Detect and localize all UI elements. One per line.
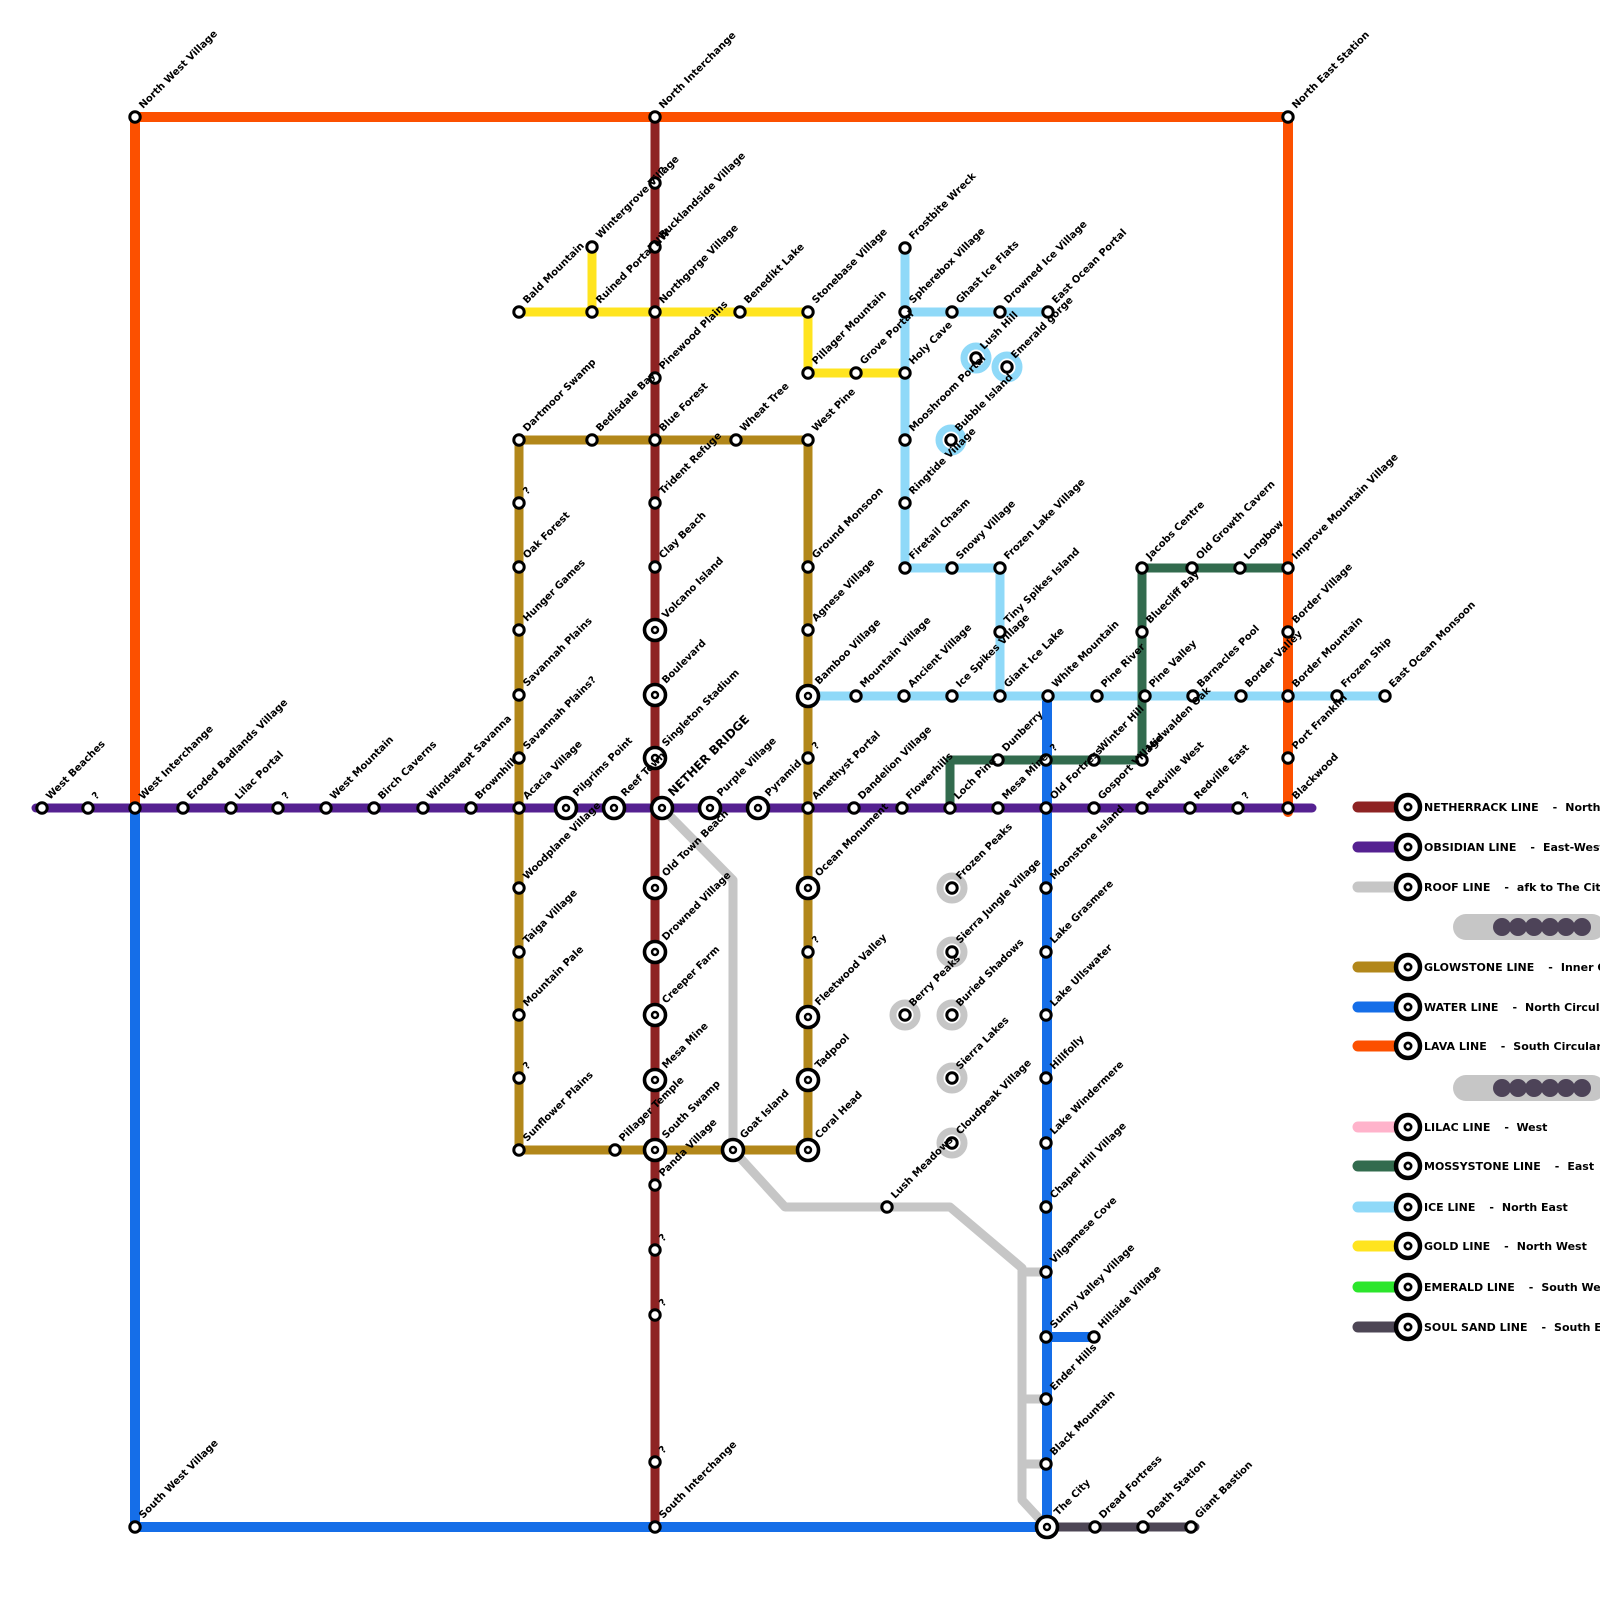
station-dot — [1089, 1332, 1099, 1342]
station-dot — [849, 803, 859, 813]
station-dread-fortress[interactable] — [1090, 1522, 1100, 1532]
station--[interactable] — [273, 803, 283, 813]
station-giant-ice-lake[interactable] — [995, 691, 1005, 701]
station-label: Blue Forest — [657, 381, 710, 434]
station-death-station[interactable] — [1138, 1522, 1148, 1532]
station-interchange-core — [756, 806, 759, 809]
station-label: Vilgamese Cove — [1048, 1195, 1119, 1266]
station-dot — [1137, 627, 1147, 637]
legend-row-obsidian-line: OBSIDIAN LINE-East-West — [1358, 835, 1600, 859]
station-dot — [803, 307, 813, 317]
legend-separator: - — [1501, 1040, 1506, 1053]
station-dot — [130, 1522, 140, 1532]
station-north-west-village[interactable] — [130, 112, 140, 122]
legend-station-icon-dot — [1406, 1325, 1410, 1329]
station-label: Cloudpeak Village — [954, 1058, 1034, 1138]
station-interchange-core — [708, 806, 711, 809]
station-label: Drowned Village — [660, 870, 733, 943]
station-west-pine[interactable] — [803, 435, 813, 445]
station-label: ? — [90, 790, 102, 802]
legend-line-desc: South West — [1541, 1281, 1600, 1294]
station-blue-forest[interactable] — [650, 435, 660, 445]
station-label: Boulevard — [660, 638, 708, 686]
station-dot — [1089, 803, 1099, 813]
legend-station-icon-dot — [1406, 1044, 1410, 1048]
station-dartmoor-swamp[interactable] — [514, 435, 524, 445]
station-lake-ullswater[interactable] — [1041, 1010, 1051, 1020]
station-label: Holy Cave — [907, 320, 955, 368]
station-label: Lake Ullswater — [1048, 942, 1115, 1009]
station-dot — [1041, 1138, 1051, 1148]
station-south-swamp[interactable] — [645, 1140, 666, 1161]
station-snowy-village[interactable] — [947, 563, 957, 573]
station-dot — [900, 498, 910, 508]
station-south-interchange[interactable] — [650, 1522, 660, 1532]
station-dot — [947, 883, 957, 893]
station-ocean-monument[interactable] — [798, 878, 819, 899]
station-interchange-core — [1045, 1525, 1048, 1528]
station-dot — [514, 307, 524, 317]
station-pyramid[interactable] — [748, 798, 769, 819]
station-label: Mooshroom Portal — [907, 353, 988, 434]
station-sunny-valley-village[interactable] — [1041, 1332, 1051, 1342]
station-dot — [803, 753, 813, 763]
station-dot — [1236, 691, 1246, 701]
station-interchange-core — [564, 806, 567, 809]
station-west-mountain[interactable] — [321, 803, 331, 813]
legend-label: ROOF LINE-afk to The City — [1424, 881, 1600, 894]
legend-label: GLOWSTONE LINE-Inner Orbit — [1424, 961, 1600, 974]
legend-dot — [1573, 918, 1591, 936]
station-label: Tiny Spikes Island — [1002, 546, 1082, 626]
station-dot — [83, 803, 93, 813]
station-label: Bald Mountain — [521, 241, 586, 306]
station-label: Fleetwood Valley — [813, 932, 889, 1008]
legend-row-lava-line: LAVA LINE-South Circular — [1358, 1034, 1600, 1058]
station-pine-valley[interactable] — [1140, 691, 1150, 701]
legend-line-desc: East — [1567, 1160, 1594, 1173]
station-dot — [947, 1073, 957, 1083]
legend-station-icon-dot — [1406, 845, 1410, 849]
station-benedikt-lake[interactable] — [735, 307, 745, 317]
station-interchange-core — [653, 693, 656, 696]
station-tadpool[interactable] — [798, 1070, 819, 1091]
station-label: Ender Hills — [1048, 1342, 1099, 1393]
station--[interactable] — [514, 498, 524, 508]
station-label: Improve Mountain Village — [1290, 452, 1400, 562]
legend-separator: - — [1530, 841, 1535, 854]
station-ruined-portal-nw[interactable] — [587, 307, 597, 317]
station-longbow[interactable] — [1235, 563, 1245, 573]
legend-label: ICE LINE-North East — [1424, 1201, 1568, 1214]
legend-line-name: LILAC LINE — [1424, 1121, 1490, 1134]
station-acacia-village[interactable] — [514, 803, 524, 813]
legend-line-name: MOSSYSTONE LINE — [1424, 1160, 1541, 1173]
station-dot — [995, 691, 1005, 701]
station-redville-east[interactable] — [1185, 803, 1195, 813]
station-blackwood[interactable] — [1283, 803, 1293, 813]
station-frozen-lake-village[interactable] — [995, 563, 1005, 573]
station-sunflower-plains[interactable] — [514, 1145, 524, 1155]
station-dot — [1090, 1522, 1100, 1532]
legend-label: LILAC LINE-West — [1424, 1121, 1547, 1134]
station-label: Emerald gorge — [1009, 295, 1075, 361]
station--[interactable] — [650, 1457, 660, 1467]
station-label: Pyramid — [763, 758, 804, 799]
station-dot — [418, 803, 428, 813]
station-hunger-games[interactable] — [514, 625, 524, 635]
station-dot — [900, 435, 910, 445]
station-ender-hills[interactable] — [1041, 1394, 1051, 1404]
station-dot — [945, 803, 955, 813]
station-dot — [650, 1245, 660, 1255]
legend-line-desc: Inner Orbit — [1561, 961, 1600, 974]
station-interchange-core — [653, 886, 656, 889]
legend-label: OBSIDIAN LINE-East-West — [1424, 841, 1600, 854]
station-dot — [1092, 691, 1102, 701]
station-bald-mountain[interactable] — [514, 307, 524, 317]
legend-separator: - — [1548, 961, 1553, 974]
station-label: Moonstone Island — [1048, 804, 1126, 882]
legend-line-desc: South East — [1554, 1321, 1600, 1334]
station-label: Lush Meadows — [889, 1135, 955, 1201]
station-pilgrims-point[interactable] — [556, 798, 577, 819]
station-dot — [899, 691, 909, 701]
station-label: Benedikt Lake — [742, 242, 807, 307]
station-dot — [803, 562, 813, 572]
legend-dot — [1509, 918, 1527, 936]
station-dot — [1235, 563, 1245, 573]
station-wheat-tree[interactable] — [731, 435, 741, 445]
station-label: ? — [280, 790, 292, 802]
legend-line-name: OBSIDIAN LINE — [1424, 841, 1516, 854]
station-old-fortress[interactable] — [1041, 803, 1051, 813]
station-mooshroom-portal[interactable] — [900, 435, 910, 445]
station-drowned-village[interactable] — [645, 942, 666, 963]
legend-separator: - — [1504, 1121, 1508, 1134]
station-dot — [1186, 1522, 1196, 1532]
station-dot — [947, 307, 957, 317]
station-dot — [1380, 691, 1390, 701]
station-stonebase-village[interactable] — [803, 307, 813, 317]
station-northgorge-village[interactable] — [650, 307, 660, 317]
station-woodplane-village[interactable] — [514, 883, 524, 893]
station-dot — [1041, 1459, 1051, 1469]
station-dot — [1041, 1267, 1051, 1277]
station-label: Black Mountain — [1048, 1389, 1117, 1458]
station-boulevard[interactable] — [645, 685, 666, 706]
station-the-city[interactable] — [1037, 1517, 1058, 1538]
station--[interactable] — [803, 753, 813, 763]
station-dot — [1140, 691, 1150, 701]
station-ancient-village[interactable] — [899, 691, 909, 701]
station-vilgamese-cove[interactable] — [1041, 1267, 1051, 1277]
station-pillager-mountain[interactable] — [803, 368, 813, 378]
legend-station-icon-dot — [1406, 1205, 1410, 1209]
legend-line-desc: afk to The City — [1517, 881, 1600, 894]
station-dot — [650, 435, 660, 445]
station-dot — [273, 803, 283, 813]
legend-row-ice-line: ICE LINE-North East — [1358, 1195, 1568, 1219]
legend-line-name: ICE LINE — [1424, 1201, 1475, 1214]
station-label: ? — [1240, 790, 1252, 802]
legend-line-name: NETHERRACK LINE — [1424, 801, 1539, 814]
station-moonstone-island[interactable] — [1041, 883, 1051, 893]
station-label: Longbow — [1242, 518, 1286, 562]
station-label: Sunflower Plains — [521, 1070, 595, 1144]
station-nether-bridge[interactable] — [652, 798, 673, 819]
station-lilac-portal[interactable] — [226, 803, 236, 813]
station-chapel-hill-village[interactable] — [1041, 1202, 1051, 1212]
legend-line-desc: South Circular — [1513, 1040, 1600, 1053]
station-interchange-core — [612, 806, 615, 809]
station-giant-bastion[interactable] — [1186, 1522, 1196, 1532]
station-grove-portal[interactable] — [851, 368, 861, 378]
station-dot — [650, 1310, 660, 1320]
station-dot — [587, 435, 597, 445]
station-label: Old Growth Cavern — [1194, 479, 1277, 562]
station-west-interchange[interactable] — [130, 803, 140, 813]
station-bamboo-village[interactable] — [798, 686, 819, 707]
station-label: Bedisdale Bay — [594, 370, 658, 434]
station-ice-spikes-village[interactable] — [947, 691, 957, 701]
station--[interactable] — [1233, 803, 1243, 813]
station-label: Dartmoor Swamp — [521, 357, 598, 434]
station-dot — [1283, 112, 1293, 122]
legend-separator: - — [1529, 1281, 1534, 1294]
station-interchange-core — [806, 1148, 809, 1151]
station-label: Taiga Village — [521, 888, 580, 947]
station-drowned-ice-village[interactable] — [995, 307, 1005, 317]
station-goat-island[interactable] — [723, 1140, 744, 1161]
station-reef-town[interactable] — [604, 798, 625, 819]
station-bedisdale-bay[interactable] — [587, 435, 597, 445]
station-dot — [650, 112, 660, 122]
legend-row-water-line: WATER LINE-North Circular — [1358, 995, 1600, 1019]
station-loch-pine[interactable] — [945, 803, 955, 813]
station-hillside-village[interactable] — [1089, 1332, 1099, 1342]
station-creeper-farm[interactable] — [645, 1005, 666, 1026]
station-old-town-beach[interactable] — [645, 878, 666, 899]
station-coral-head[interactable] — [798, 1140, 819, 1161]
station-ghast-ice-flats[interactable] — [947, 307, 957, 317]
station-lake-windermere[interactable] — [1041, 1138, 1051, 1148]
station-gosport-village[interactable] — [1089, 803, 1099, 813]
station-hillfolly[interactable] — [1041, 1073, 1051, 1083]
station-label: Windswept Savanna — [425, 713, 514, 802]
station-interchange-core — [660, 806, 663, 809]
station-label: Lake Windermere — [1048, 1059, 1126, 1137]
station-label: Mesa Mine — [660, 1021, 710, 1071]
legend-row-soul-sand-line: SOUL SAND LINE-South East — [1358, 1315, 1600, 1339]
station-north-east-station[interactable] — [1283, 112, 1293, 122]
station-frostbite-wreck[interactable] — [900, 243, 910, 253]
legend-separator: - — [1555, 1160, 1560, 1173]
station-interchange-core — [806, 1015, 809, 1018]
station-dandelion-village[interactable] — [849, 803, 859, 813]
station-clay-beach[interactable] — [650, 562, 660, 572]
station-taiga-village[interactable] — [514, 947, 524, 957]
station-lake-grasmere[interactable] — [1041, 947, 1051, 957]
station-amethyst-portal[interactable] — [803, 803, 813, 813]
station-dot — [1137, 803, 1147, 813]
legend-dot — [1525, 1079, 1543, 1097]
station-border-mountain[interactable] — [1283, 691, 1293, 701]
station--[interactable] — [650, 1310, 660, 1320]
station-dot — [466, 803, 476, 813]
station-label: Bluecliff Bay — [1144, 569, 1202, 627]
station-savannah-plains[interactable] — [514, 690, 524, 700]
station-dot — [1283, 563, 1293, 573]
station-white-mountain[interactable] — [1043, 691, 1053, 701]
station-fleetwood-valley[interactable] — [798, 1007, 819, 1028]
station-label: Dunberry — [1000, 709, 1045, 754]
station-dot — [900, 243, 910, 253]
station-label: Frozen Ship — [1339, 636, 1394, 691]
station-dot — [514, 1145, 524, 1155]
station-dot — [1041, 1332, 1051, 1342]
station-dot — [178, 803, 188, 813]
legend-line-desc: North East — [1502, 1201, 1568, 1214]
station-volcano-island[interactable] — [645, 620, 666, 641]
station-label: Frozen Peaks — [954, 822, 1015, 883]
station-windswept-savanna[interactable] — [418, 803, 428, 813]
legend-dot — [1493, 1079, 1511, 1097]
station-dot — [900, 1010, 910, 1020]
station-black-mountain[interactable] — [1041, 1459, 1051, 1469]
station-dot — [947, 691, 957, 701]
station-label: Frostbite Wreck — [907, 171, 978, 242]
station-dot — [37, 803, 47, 813]
station-lush-meadows[interactable] — [882, 1202, 892, 1212]
station-label: Oak Forest — [521, 510, 572, 561]
station-oak-forest[interactable] — [514, 562, 524, 572]
station-mesa-mine[interactable] — [645, 1070, 666, 1091]
station-flowerhills[interactable] — [897, 803, 907, 813]
station-dot — [1041, 1010, 1051, 1020]
station-pillager-temple[interactable] — [610, 1145, 620, 1155]
station-west-beaches[interactable] — [37, 803, 47, 813]
station-interchange-core — [653, 1148, 656, 1151]
station-east-ocean-monsoon[interactable] — [1380, 691, 1390, 701]
legend-line-name: LAVA LINE — [1424, 1040, 1487, 1053]
station-wintergrove-village[interactable] — [587, 242, 597, 252]
station-dot — [1041, 1202, 1051, 1212]
station-dot — [882, 1202, 892, 1212]
station-label: Agnese Village — [810, 557, 877, 624]
legend-line-name: SOUL SAND LINE — [1424, 1321, 1527, 1334]
transit-map-page: North West VillageNorth InterchangeNorth… — [0, 0, 1600, 1600]
station-interchange-core — [653, 1078, 656, 1081]
legend-line-desc: North Circular — [1525, 1001, 1600, 1014]
legend-label: MOSSYSTONE LINE-East — [1424, 1160, 1594, 1173]
station-dot — [369, 803, 379, 813]
station-border-valley[interactable] — [1236, 691, 1246, 701]
station-mountain-pale[interactable] — [514, 1010, 524, 1020]
legend-row-netherrack-line: NETHERRACK LINE-North-South — [1358, 795, 1600, 819]
station-dot — [514, 1010, 524, 1020]
station-birch-caverns[interactable] — [369, 803, 379, 813]
station-port-franklin[interactable] — [1283, 753, 1293, 763]
station-holy-cave[interactable] — [900, 368, 910, 378]
station-dot — [650, 1457, 660, 1467]
station-ground-monsoon[interactable] — [803, 562, 813, 572]
legend-station-icon-dot — [1406, 1164, 1410, 1168]
station--[interactable] — [514, 1073, 524, 1083]
station-dot — [514, 1073, 524, 1083]
legend-line-desc: West — [1516, 1121, 1547, 1134]
station-panda-village[interactable] — [650, 1180, 660, 1190]
station-label: Savannah Plains — [521, 616, 594, 689]
station-redville-west[interactable] — [1137, 803, 1147, 813]
legend-line-desc: North West — [1517, 1240, 1587, 1253]
legend-station-icon-dot — [1406, 965, 1410, 969]
station-mesa-mine[interactable] — [993, 803, 1003, 813]
station-dot — [1138, 1522, 1148, 1532]
station-label: Wheat Tree — [738, 381, 791, 434]
station-dot — [226, 803, 236, 813]
station-label: Savannah Plains? — [521, 674, 599, 752]
legend-dot — [1557, 918, 1575, 936]
station-label: Mountain Pale — [521, 944, 586, 1009]
legend-station-icon-dot — [1406, 805, 1410, 809]
line-lava — [135, 117, 1288, 812]
station-mountain-village[interactable] — [851, 691, 861, 701]
station-brownhill[interactable] — [466, 803, 476, 813]
line-water — [135, 696, 1047, 1527]
legend-dot — [1573, 1079, 1591, 1097]
station--[interactable] — [803, 947, 813, 957]
station-jacobs-centre[interactable] — [1137, 563, 1147, 573]
station-dot — [1041, 947, 1051, 957]
station-south-west-village[interactable] — [130, 1522, 140, 1532]
station--[interactable] — [650, 1245, 660, 1255]
station-improve-mountain-village[interactable] — [1283, 563, 1293, 573]
station-dot — [1041, 803, 1051, 813]
station-agnese-village[interactable] — [803, 625, 813, 635]
station--[interactable] — [83, 803, 93, 813]
legend-line-name: GOLD LINE — [1424, 1240, 1490, 1253]
legend-row-lilac-line: LILAC LINE-West — [1358, 1115, 1547, 1139]
station-label: Tadpool — [813, 1032, 852, 1071]
station-label: Creeper Farm — [660, 944, 722, 1006]
station-north-interchange[interactable] — [650, 112, 660, 122]
station-ringtide-village[interactable] — [900, 498, 910, 508]
legend-line-name: EMERALD LINE — [1424, 1281, 1515, 1294]
station-label: Volcano Island — [660, 556, 726, 622]
legend-dot — [1493, 918, 1511, 936]
station-label: The City — [1052, 1477, 1093, 1518]
station-trident-refuge[interactable] — [650, 498, 660, 508]
station-label: Hunger Games — [521, 558, 588, 625]
legend-dot — [1557, 1079, 1575, 1097]
station-label: East Ocean Monsoon — [1387, 600, 1478, 691]
station-dot — [803, 947, 813, 957]
station-dot — [1041, 1073, 1051, 1083]
station-dot — [514, 690, 524, 700]
station-dot — [1283, 753, 1293, 763]
legend-label: EMERALD LINE-South West — [1424, 1281, 1600, 1294]
station-dot — [587, 307, 597, 317]
station-firetail-chasm[interactable] — [900, 563, 910, 573]
legend-line-name: GLOWSTONE LINE — [1424, 961, 1534, 974]
map-station-labels: North West VillageNorth InterchangeNorth… — [44, 28, 1478, 1521]
legend-line-desc: North-South — [1565, 801, 1600, 814]
station-pine-river[interactable] — [1092, 691, 1102, 701]
station-bluecliff-bay[interactable] — [1137, 627, 1147, 637]
station-eroded-badlands-village[interactable] — [178, 803, 188, 813]
station-dot — [947, 1010, 957, 1020]
